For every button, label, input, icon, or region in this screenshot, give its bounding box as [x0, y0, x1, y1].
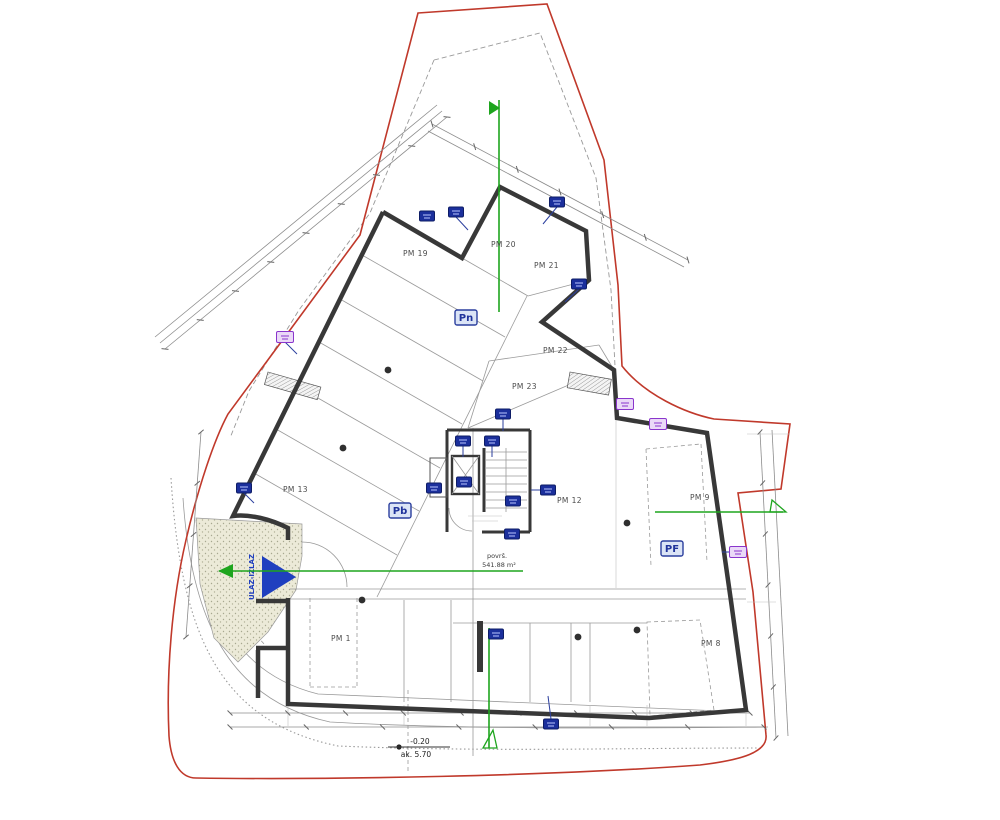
wall-pier	[477, 621, 483, 672]
wall-marker-purple	[277, 332, 294, 343]
wall-markers	[237, 197, 747, 729]
dimension-tick	[162, 349, 169, 350]
wall-marker-blue	[541, 485, 556, 495]
column-dot	[359, 597, 366, 604]
floor-plan-canvas: ULAZ-IZLAZ PM 19PM 20PM 21PM 22PM 23PM 1…	[0, 0, 1000, 820]
parking-space-label: PM 20	[491, 240, 516, 249]
dimension-tick	[338, 204, 345, 205]
parking-space-label: PM 13	[283, 485, 308, 494]
elevation-bottom-value: ak. 5.70	[401, 750, 432, 759]
zone-label-pb-text: Pb	[393, 506, 408, 517]
ramp-direction-label: ULAZ-IZLAZ	[248, 554, 256, 600]
wall-marker-blue	[550, 197, 565, 207]
parking-space-label: PM 22	[543, 346, 568, 355]
parking-space-label: PM 8	[701, 639, 721, 648]
zone-label-pn: Pn	[455, 310, 477, 325]
wall-marker-blue	[544, 719, 559, 729]
wall-marker-blue	[427, 483, 442, 493]
area-note-line1: površ.	[487, 552, 507, 560]
column-dot	[340, 445, 347, 452]
wall-marker-blue	[457, 477, 472, 487]
marker-stems	[244, 207, 731, 719]
zone-label-pn-text: Pn	[459, 313, 473, 324]
zone-label-pf-text: PF	[665, 544, 679, 555]
dimension-tick	[444, 117, 451, 118]
area-note: površ. 541.88 m²	[482, 552, 516, 569]
column-dot	[575, 634, 582, 641]
wall-marker-blue	[496, 409, 511, 419]
wall-marker-purple	[650, 419, 667, 430]
area-note-line2: 541.88 m²	[482, 561, 516, 569]
wall-marker-blue	[237, 483, 252, 493]
wall-marker-blue	[572, 279, 587, 289]
wall-marker-blue	[456, 436, 471, 446]
parking-space-label: PM 1	[331, 634, 351, 643]
floor-plan-page: ULAZ-IZLAZ PM 19PM 20PM 21PM 22PM 23PM 1…	[0, 0, 1000, 820]
parking-space-label: PM 23	[512, 382, 537, 391]
column-dot	[634, 627, 641, 634]
dimension-tick	[303, 233, 310, 234]
section-flag-bottom-icon	[483, 730, 497, 748]
parking-space-labels: PM 19PM 20PM 21PM 22PM 23PM 13PM 12PM 9P…	[283, 240, 721, 648]
dimension-tick	[197, 320, 204, 321]
zone-label-pf: PF	[661, 541, 683, 556]
column-dot	[624, 520, 631, 527]
column-dot	[385, 367, 392, 374]
wall-marker-blue	[420, 211, 435, 221]
wall-marker-blue	[485, 436, 500, 446]
dimension-chains	[155, 105, 790, 772]
dimension-tick	[267, 262, 274, 263]
zone-label-pb: Pb	[389, 503, 411, 518]
parking-space-label: PM 19	[403, 249, 428, 258]
parking-space-label: PM 21	[534, 261, 559, 270]
wall-marker-blue	[489, 629, 504, 639]
stair-core	[430, 430, 530, 532]
section-flag-right-icon	[770, 500, 786, 512]
parking-space-label: PM 9	[690, 493, 710, 502]
wall-marker-blue	[506, 496, 521, 506]
dimension-tick	[232, 291, 239, 292]
dimension-tick	[373, 175, 380, 176]
door-swing-arc	[449, 508, 472, 531]
wall-marker-purple	[730, 547, 747, 558]
hatched-detail	[264, 372, 611, 400]
wall-marker-blue	[449, 207, 464, 217]
elevation-top-value: -0.20	[410, 737, 430, 746]
dimension-tick	[408, 146, 415, 147]
parking-space-label: PM 12	[557, 496, 582, 505]
wall-marker-purple	[617, 399, 634, 410]
section-lines	[218, 100, 786, 748]
parking-dividers	[254, 255, 746, 756]
wall-marker-blue	[505, 529, 520, 539]
